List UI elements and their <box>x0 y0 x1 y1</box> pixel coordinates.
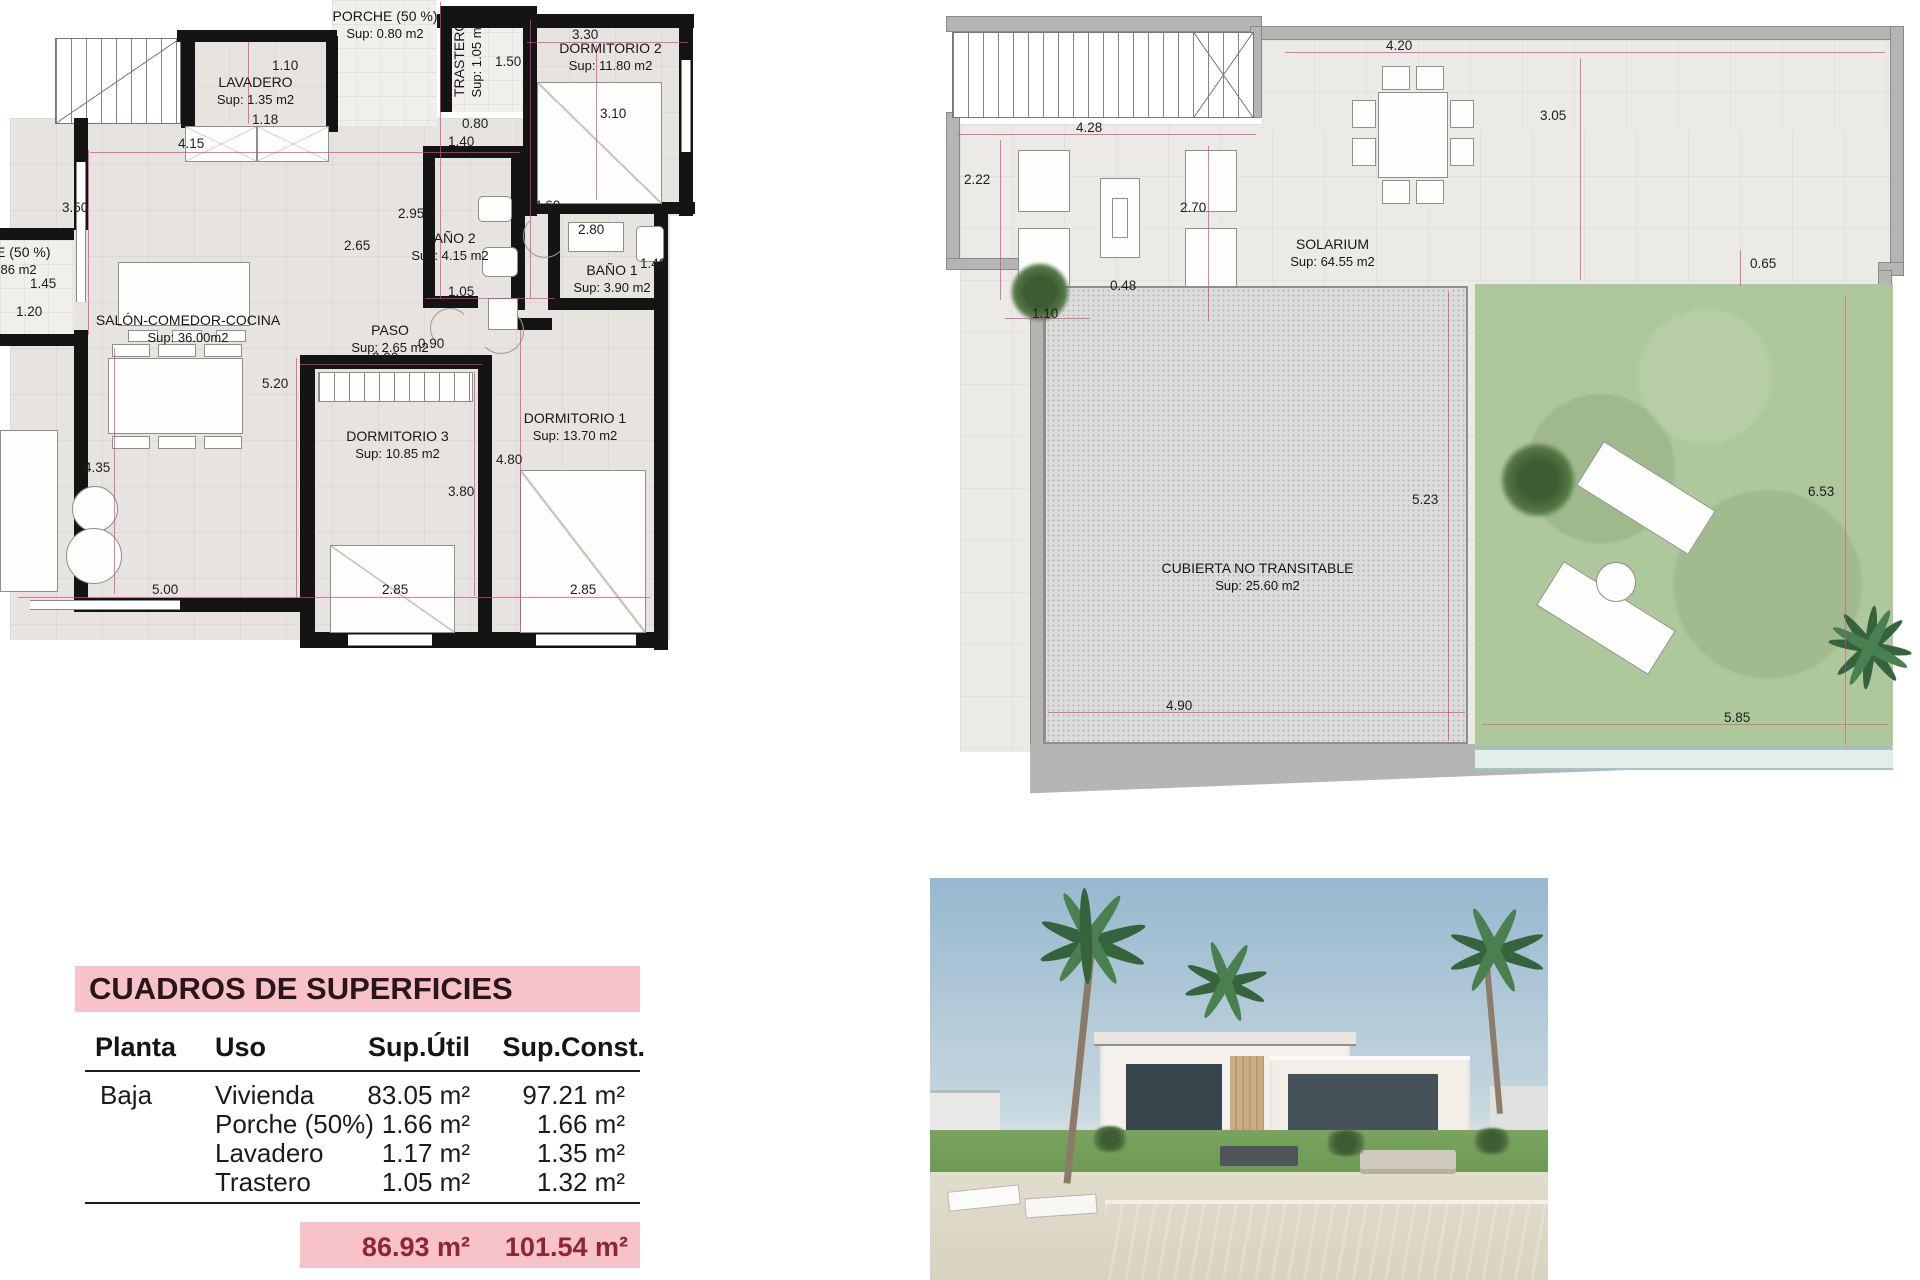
dimension-line <box>1285 52 1885 53</box>
dimension-line <box>1000 140 1001 300</box>
dim-label: 5.85 <box>1724 710 1750 725</box>
roof-wall <box>1890 26 1904 270</box>
palm-tree <box>1820 590 1920 720</box>
cell-util: 1.66 m² <box>340 1109 470 1140</box>
villa-right-opening <box>1288 1074 1438 1136</box>
roof-dining-chair <box>1352 138 1376 166</box>
pool-edge-strip <box>1475 748 1893 770</box>
palm-frond <box>1078 888 1093 984</box>
table-rule <box>85 1070 640 1072</box>
roof-dining-chair <box>1450 138 1474 166</box>
dim-label: 4.28 <box>1076 120 1102 135</box>
dim-label: 6.53 <box>1808 484 1834 499</box>
room-label-cubierta: CUBIERTA NO TRANSITABLE Sup: 25.60 m2 <box>1130 560 1385 594</box>
cubierta-area <box>1044 286 1468 744</box>
roof-chair <box>1018 150 1070 212</box>
room-label-solarium: SOLARIUM Sup: 64.55 m2 <box>1250 236 1415 270</box>
cell-const: 1.35 m² <box>495 1138 625 1169</box>
photo-pool <box>1105 1200 1548 1280</box>
surfaces-table: CUADROS DE SUPERFICIES Planta Uso Sup.Út… <box>0 940 700 1280</box>
dim-label: 0.65 <box>1750 256 1776 271</box>
dimension-line <box>1208 146 1209 321</box>
photo-bush <box>1470 1128 1514 1154</box>
dimension-line <box>1845 295 1846 745</box>
dimension-line <box>958 134 1256 135</box>
room-area: Sup: 64.55 m2 <box>1250 254 1415 270</box>
col-header-planta: Planta <box>95 1032 176 1063</box>
dim-label: 2.70 <box>1180 200 1206 215</box>
dim-label: 5.23 <box>1412 492 1438 507</box>
roof-dining-chair <box>1416 66 1444 90</box>
palm-trunk <box>1063 944 1095 1183</box>
cell-util: 1.17 m² <box>340 1138 470 1169</box>
roof-dining-table <box>1378 92 1448 178</box>
roof-dining-chair <box>1416 180 1444 204</box>
roof-coffee-table-inner <box>1112 198 1128 238</box>
dim-label: 4.20 <box>1386 38 1412 53</box>
photo-outdoor-sofa <box>1360 1150 1456 1174</box>
photo-palm <box>1160 938 1290 1078</box>
cell-const: 1.32 m² <box>495 1167 625 1198</box>
roof-wall <box>946 16 1262 32</box>
cell-uso: Lavadero <box>215 1138 323 1169</box>
dim-label: 2.22 <box>964 172 990 187</box>
dimension-line <box>1048 712 1465 713</box>
cell-util: 1.05 m² <box>340 1167 470 1198</box>
table-rule <box>85 1202 640 1204</box>
roof-wall <box>1030 258 1044 754</box>
photo-palm <box>1430 904 1548 1104</box>
dim-label: 4.90 <box>1166 698 1192 713</box>
palm-trunk <box>1483 954 1503 1114</box>
dimension-line <box>1482 724 1888 725</box>
room-area: Sup: 25.60 m2 <box>1130 578 1385 594</box>
photo-bush <box>1322 1130 1370 1156</box>
total-util: 86.93 m² <box>330 1232 470 1263</box>
photo-bush <box>1090 1126 1130 1152</box>
staircase-arrow <box>1194 32 1254 118</box>
cell-planta: Baja <box>100 1080 152 1111</box>
cell-uso: Vivienda <box>215 1080 314 1111</box>
roof-wall <box>1256 26 1904 40</box>
roof-dining-chair <box>1382 66 1410 90</box>
distant-house <box>930 1090 1000 1133</box>
roof-dining-chair <box>1352 100 1376 128</box>
dim-label: 3.05 <box>1540 108 1566 123</box>
tree <box>1500 442 1576 518</box>
dimension-line <box>1448 292 1449 740</box>
col-header-const: Sup.Const. <box>495 1032 645 1063</box>
dim-label: 1.10 <box>1032 306 1058 321</box>
dim-label: 0.48 <box>1110 278 1136 293</box>
col-header-util: Sup.Útil <box>340 1032 470 1063</box>
roof-wall <box>946 112 960 270</box>
roof-dining-chair <box>1382 180 1410 204</box>
cell-util: 83.05 m² <box>340 1080 470 1111</box>
dimension-line <box>1580 58 1581 280</box>
col-header-uso: Uso <box>215 1032 266 1063</box>
villa-render-photo <box>930 878 1548 1280</box>
photo-dining-set <box>1220 1146 1298 1166</box>
cell-const: 97.21 m² <box>495 1080 625 1111</box>
dimension-line <box>1740 250 1741 286</box>
room-name: CUBIERTA NO TRANSITABLE <box>1130 560 1385 578</box>
table-title: CUADROS DE SUPERFICIES <box>75 966 640 1012</box>
roof-chair <box>1185 228 1237 290</box>
photo-palm <box>1000 884 1160 1184</box>
total-const: 101.54 m² <box>490 1232 628 1263</box>
roof-plan: 4.20 3.05 4.28 2.22 2.70 0.48 1.10 0.65 … <box>0 0 1920 810</box>
cell-uso: Trastero <box>215 1167 311 1198</box>
lounger-side-table <box>1596 562 1636 602</box>
roof-dining-chair <box>1450 100 1474 128</box>
room-name: SOLARIUM <box>1250 236 1415 254</box>
cell-const: 1.66 m² <box>495 1109 625 1140</box>
